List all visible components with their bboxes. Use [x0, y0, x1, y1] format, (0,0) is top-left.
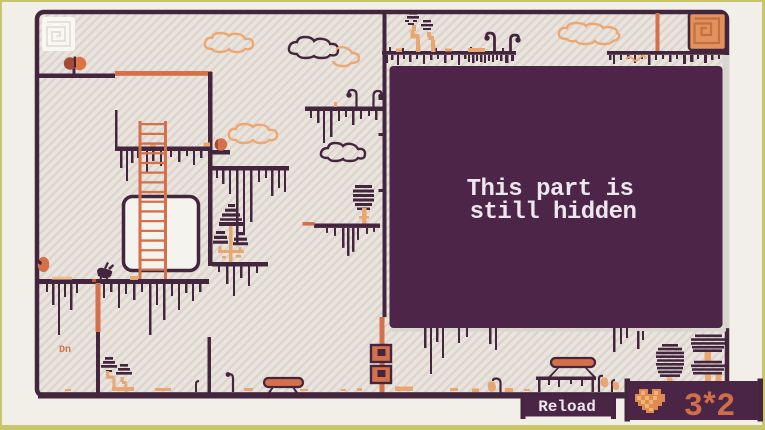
- svg-text:Dn: Dn: [59, 345, 71, 356]
- svg-text:3*2: 3*2: [684, 388, 734, 425]
- svg-text:Reload: Reload: [538, 398, 596, 416]
- svg-text:still hidden: still hidden: [470, 199, 637, 226]
